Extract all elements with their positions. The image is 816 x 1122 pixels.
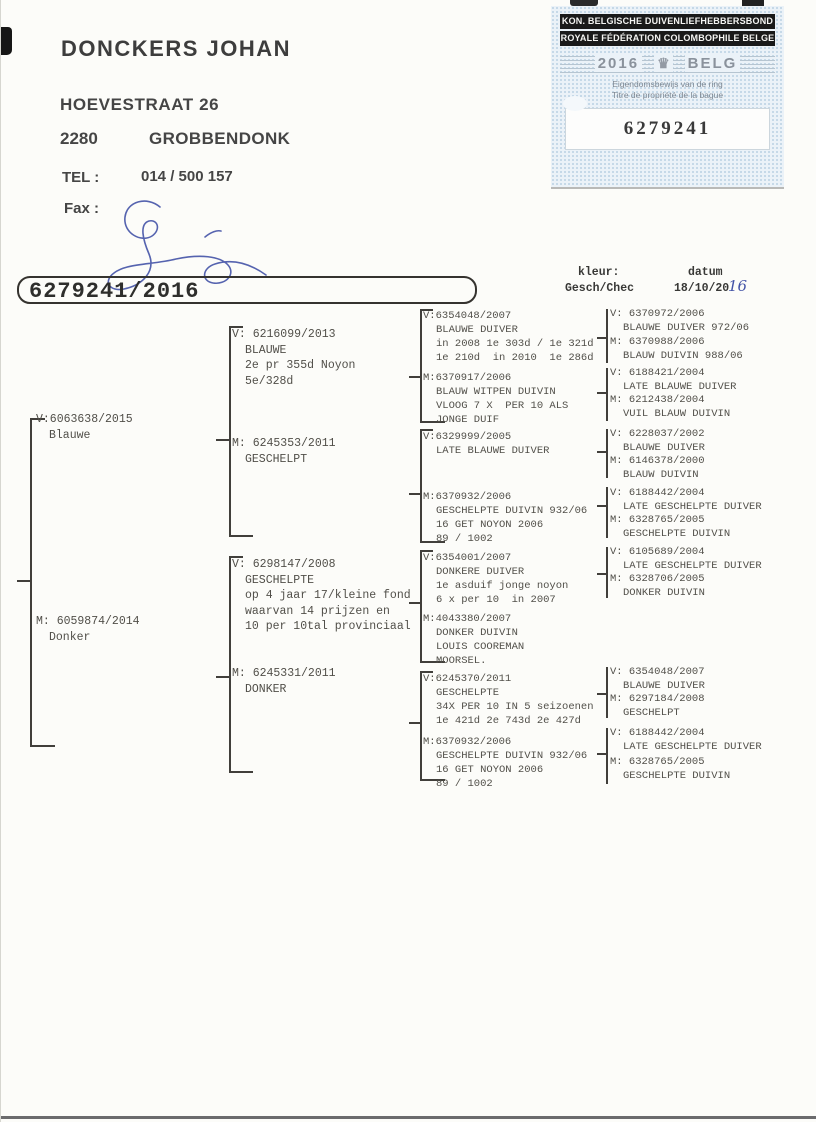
bird-g3a-dam: M:6370917/2006BLAUW WITPEN DUIVINVLOOG 7… [423, 371, 568, 427]
bird-g3b-sire: V:6329999/2005LATE BLAUWE DUIVER [423, 430, 549, 458]
scan-artifact-mark [0, 27, 12, 55]
stamp-year-row: 2016 ♛ BELG [560, 53, 775, 73]
bird-g4e-dam: M: 6328706/2005DONKER DUIVIN [610, 572, 705, 600]
crown-icon: ♛ [654, 55, 673, 72]
fax-label: Fax : [64, 200, 99, 217]
federation-stamp: KON. BELGISCHE DUIVENLIEFHEBBERSBOND ROY… [551, 6, 784, 187]
bird-g3d-dam: M:6370932/2006GESCHELPTE DUIVIN 932/0616… [423, 735, 587, 791]
owner-street: HOEVESTRAAT 26 [60, 95, 219, 115]
owner-postal-code: 2280 [60, 129, 98, 149]
bird-g4a-dam: M: 6370988/2006BLAUW DUIVIN 988/06 [610, 335, 743, 363]
stamp-ownership-fr: Titre de propriété de la bague [560, 90, 775, 101]
owner-city: GROBBENDONK [149, 129, 290, 149]
owner-name: DONCKERS JOHAN [61, 36, 291, 62]
stamp-org-nl: KON. BELGISCHE DUIVENLIEFHEBBERSBOND [560, 14, 775, 29]
bird-g4g-dam: M: 6328765/2005GESCHELPTE DUIVIN [610, 755, 730, 783]
bird-g4d-sire: V: 6188442/2004LATE GESCHELPTE DUIVER [610, 486, 762, 514]
bird-g4b-dam: M: 6212438/2004VUIL BLAUW DUIVIN [610, 393, 730, 421]
pedigree-document: DONCKERS JOHAN HOEVESTRAAT 26 2280 GROBB… [0, 0, 816, 1122]
datum-label: datum [688, 266, 723, 279]
bird-g3a-sire: V:6354048/2007BLAUWE DUIVERin 2008 1e 30… [423, 309, 594, 365]
tel-label: TEL : [62, 169, 99, 186]
bird-g3c-sire: V:6354001/2007DONKERE DUIVER1e asduif jo… [423, 551, 568, 607]
datum-value: 18/10/20 [674, 282, 729, 295]
scan-edge-line [0, 1116, 816, 1119]
bird-g3d-sire: V:6245370/2011GESCHELPTE34X PER 10 IN 5 … [423, 672, 594, 728]
tel-value: 014 / 500 157 [141, 168, 233, 185]
bird-g2b-dam: M: 6245331/2011DONKER [232, 666, 336, 697]
stamp-country: BELG [685, 55, 741, 72]
bird-g2b-sire: V: 6298147/2008GESCHELPTEop 4 jaar 17/kl… [232, 557, 411, 635]
bird-g4b-sire: V: 6188421/2004LATE BLAUWE DUIVER [610, 366, 736, 394]
bird-g4c-sire: V: 6228037/2002BLAUWE DUIVER [610, 427, 705, 455]
bird-g4f-dam: M: 6297184/2008GESCHELPT [610, 692, 705, 720]
punch-hole [563, 96, 587, 111]
bird-g4g-sire: V: 6188442/2004LATE GESCHELPTE DUIVER [610, 726, 762, 754]
bird-g4a-sire: V: 6370972/2006BLAUWE DUIVER 972/06 [610, 307, 749, 335]
bird-g1-dam: M: 6059874/2014Donker [36, 614, 140, 645]
stamp-org-fr: ROYALE FÉDÉRATION COLOMBOPHILE BELGE [560, 31, 775, 46]
bird-g1-sire: V:6063638/2015Blauwe [36, 412, 133, 443]
stamp-ring-number: 6279241 [565, 108, 770, 150]
bird-g4f-sire: V: 6354048/2007BLAUWE DUIVER [610, 665, 705, 693]
stamp-year: 2016 [595, 55, 642, 72]
scan-edge-line [0, 0, 1, 1122]
kleur-value: Gesch/Chec [565, 282, 634, 295]
stamp-ownership-nl: Eigendomsbewijs van de ring [560, 79, 775, 90]
bird-g3c-dam: M:4043380/2007DONKER DUIVINLOUIS COOREMA… [423, 612, 524, 668]
bird-g2a-dam: M: 6245353/2011GESCHELPT [232, 436, 336, 467]
bird-g2a-sire: V: 6216099/2013BLAUWE2e pr 355d Noyon5e/… [232, 327, 355, 389]
datum-handwritten: 16 [728, 277, 747, 295]
bird-g4c-dam: M: 6146378/2000BLAUW DUIVIN [610, 454, 705, 482]
bird-g4e-sire: V: 6105689/2004LATE GESCHELPTE DUIVER [610, 545, 762, 573]
bird-g4d-dam: M: 6328765/2005GESCHELPTE DUIVIN [610, 513, 730, 541]
ring-id-box: 6279241/2016 [17, 276, 477, 304]
bird-g3b-dam: M:6370932/2006GESCHELPTE DUIVIN 932/0616… [423, 490, 587, 546]
kleur-label: kleur: [578, 266, 619, 279]
